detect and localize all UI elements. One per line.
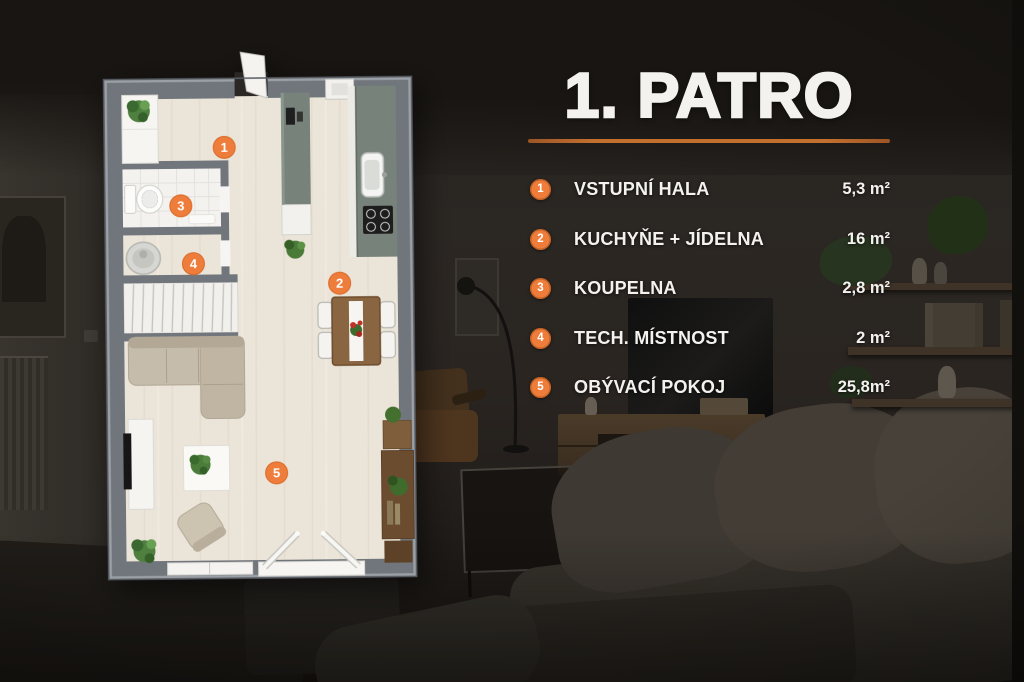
vignette-overlay [0, 0, 1024, 682]
flyer-root: 1 2 3 4 5 1. PATRO 1 VSTUPNÍ HALA 5,3 m²… [0, 0, 1024, 682]
